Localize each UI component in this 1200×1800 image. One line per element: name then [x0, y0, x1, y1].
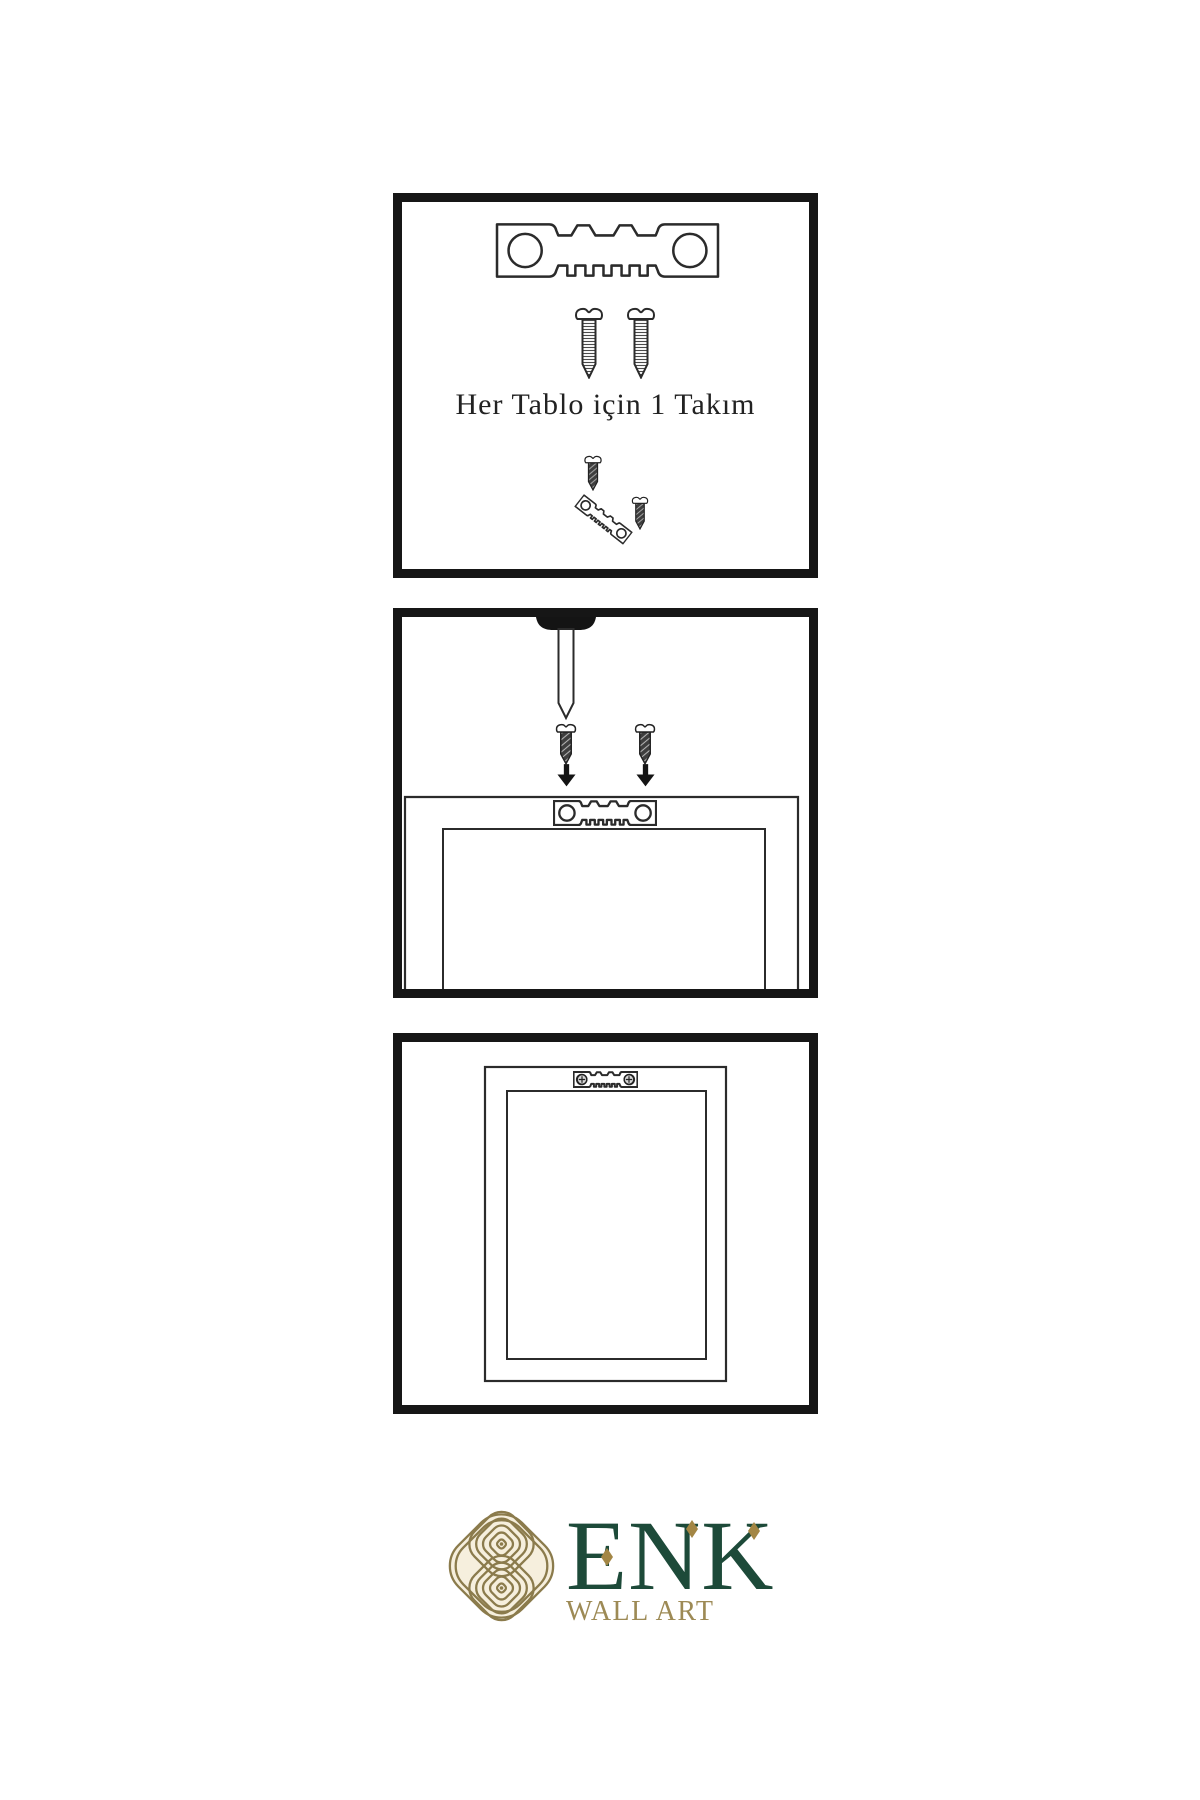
screw-icon	[628, 309, 654, 378]
hung-frame-illustration	[402, 1042, 809, 1405]
screw-icon	[636, 725, 655, 764]
small-screw-icon	[585, 456, 601, 490]
hanging-alignment-illustration	[402, 617, 809, 989]
screw-icon	[557, 725, 576, 764]
hanger-screw-head-icon	[577, 1075, 587, 1085]
frame-inner-edge	[507, 1091, 706, 1359]
step-2-panel	[393, 608, 818, 998]
frame-outer-edge	[405, 797, 798, 989]
sawtooth-hanger-icon	[554, 801, 656, 825]
step-3-panel	[393, 1033, 818, 1414]
brand-wordmark: ENK WALL ART	[560, 1506, 800, 1634]
screw-icon	[576, 309, 602, 378]
hardware-kit-illustration	[402, 202, 809, 569]
kit-caption: Her Tablo için 1 Takım	[402, 388, 809, 422]
brand-subtitle: WALL ART	[566, 1596, 715, 1627]
sawtooth-hanger-icon	[497, 224, 718, 276]
knot-emblem-icon	[438, 1496, 565, 1636]
hanger-screw-head-icon	[624, 1075, 634, 1085]
down-arrow-icon	[636, 764, 654, 786]
wall-nail-icon	[536, 617, 596, 718]
small-screw-icon	[632, 497, 647, 529]
down-arrow-icon	[557, 764, 575, 786]
instruction-sheet: Her Tablo için 1 Takım	[0, 0, 1200, 1800]
tilted-hanger-icon	[575, 495, 632, 544]
brand-logo: ENK WALL ART	[438, 1494, 798, 1639]
frame-inner-edge	[443, 829, 765, 989]
step-1-panel: Her Tablo için 1 Takım	[393, 193, 818, 578]
